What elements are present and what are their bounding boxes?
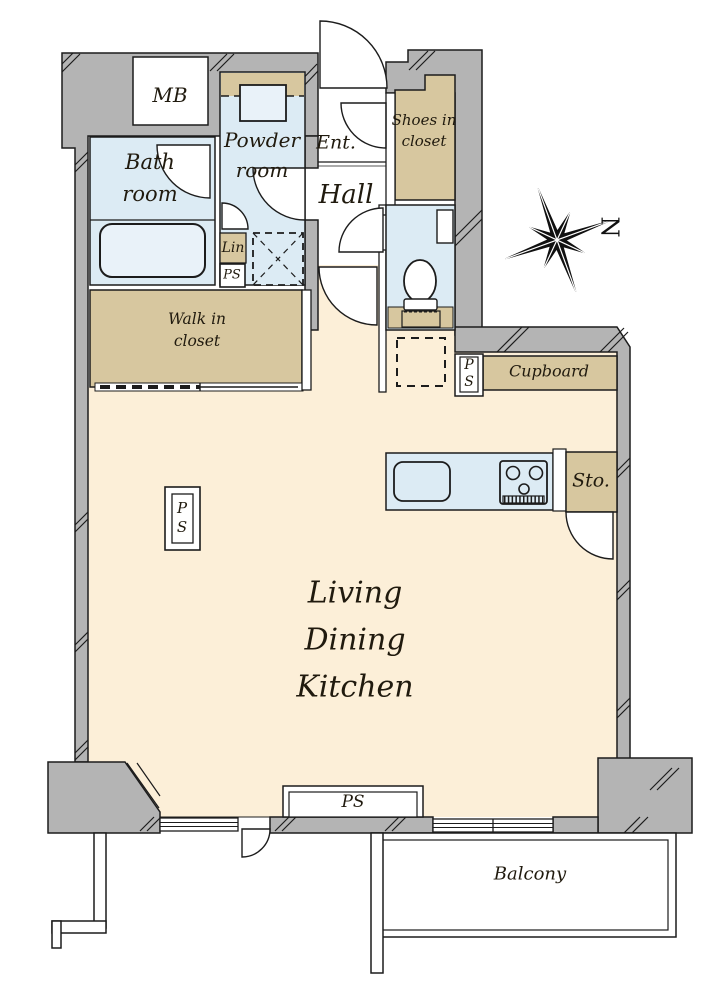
toilet-tank: [437, 210, 453, 243]
label-living-ps: P S: [177, 499, 187, 537]
bathtub: [100, 224, 205, 277]
compass-north-label: N: [593, 217, 624, 238]
toilet-room: [386, 205, 455, 330]
balcony-door: [242, 829, 270, 857]
label-ldk: Living Dining Kitchen: [296, 570, 413, 711]
label-storage: Sto.: [572, 469, 610, 494]
label-powder-room: Powder room: [224, 125, 300, 185]
side-rail-cap: [52, 921, 61, 948]
side-rail-vertical: [94, 833, 106, 928]
label-powder-ps: PS: [223, 268, 241, 285]
balcony-divider: [371, 833, 383, 973]
floorplan-drawing: [0, 0, 727, 984]
label-entrance: Ent.: [316, 131, 356, 156]
label-shoes-closet: Shoes in closet: [392, 110, 457, 152]
balcony-railing: [52, 833, 676, 973]
sliding-door: [95, 383, 303, 391]
counter-end: [553, 449, 566, 511]
powder-sink: [240, 85, 286, 121]
window-center: [433, 819, 553, 832]
toilet-door: [339, 208, 383, 252]
label-bottom-ps: PS: [341, 791, 364, 813]
kitchen-counter: [386, 453, 553, 510]
label-walk-in-closet: Walk in closet: [168, 308, 226, 352]
entrance-step: [318, 162, 386, 166]
label-hall: Hall: [319, 179, 374, 213]
washing-machine-space: [253, 233, 303, 285]
toilet-bowl: [404, 260, 436, 302]
label-kitchen-ps: P S: [464, 357, 474, 391]
label-cupboard: Cupboard: [509, 362, 589, 383]
floorplan: MB Bath room Powder room Ent. Hall Shoes…: [0, 0, 727, 984]
label-balcony: Balcony: [494, 862, 566, 885]
entrance-door: [320, 21, 387, 88]
label-linen: Lin: [222, 239, 245, 257]
window-left: [160, 818, 238, 831]
label-bathroom: Bath room: [122, 146, 177, 210]
compass-rose: [487, 170, 628, 311]
label-meter-box: MB: [152, 82, 187, 108]
